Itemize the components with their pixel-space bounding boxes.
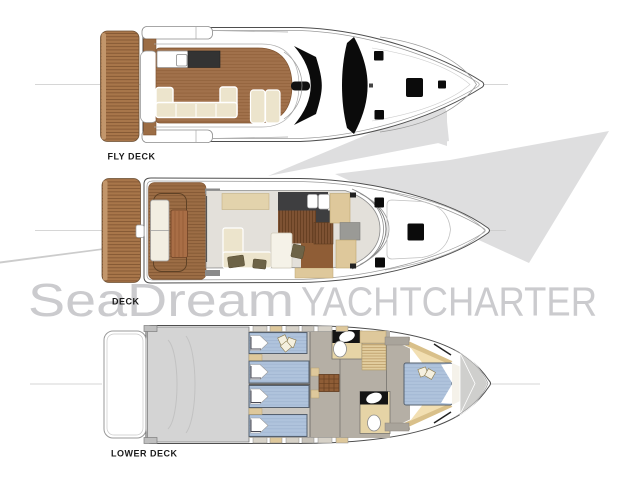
svg-text:YACHTCHARTER: YACHTCHARTER [301,279,597,325]
svg-text:LOWER DECK: LOWER DECK [111,448,178,458]
svg-text:DECK: DECK [112,297,140,307]
svg-text:FLY DECK: FLY DECK [108,152,156,162]
